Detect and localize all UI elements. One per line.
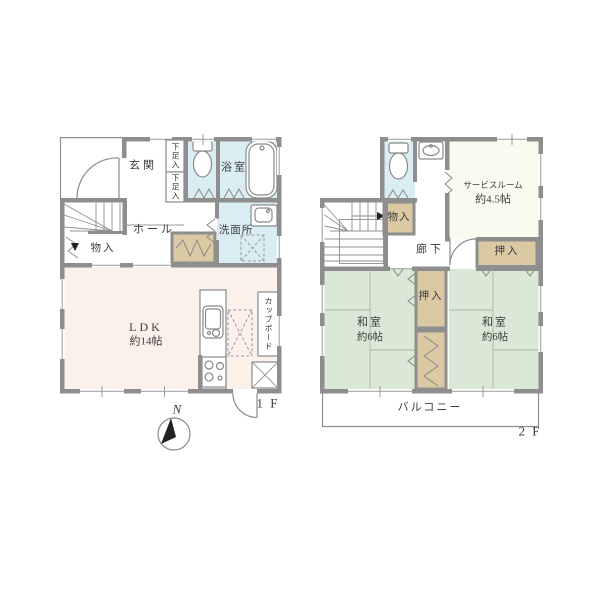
room-label-washitsu-right-size: 約6帖 — [482, 333, 508, 344]
closet-lower-box — [416, 331, 446, 389]
room-label-shoe-box-upper: 下足入 — [171, 143, 179, 170]
room-label-ldk-size: 約14帖 — [130, 337, 163, 348]
room-label-service-size: 約4.5帖 — [475, 195, 511, 206]
toilet-tank-2f — [389, 143, 408, 153]
room-label-storage-1f: 物入 — [91, 244, 116, 255]
stove — [202, 357, 226, 387]
floorplan-canvas: 玄関 下足入 下足入 浴室 洗面所 ホール 物入 LDK 約14帖 カップボード… — [0, 0, 600, 600]
room-label-washitsu-left-name: 和室 — [357, 318, 383, 329]
room-label-genkan: 玄関 — [129, 161, 157, 172]
floor2-plan — [320, 134, 543, 427]
room-label-washitsu-left-size: 約6帖 — [357, 333, 383, 344]
toilet-bowl-1f — [194, 151, 212, 177]
compass-n-label: N — [173, 403, 182, 416]
room-label-hall: ホール — [133, 225, 175, 236]
staircase-2f — [325, 203, 386, 264]
room-label-balcony: バルコニー — [398, 403, 463, 414]
floor1-label: 1 F — [257, 397, 280, 410]
washitsu-right-door-arc — [450, 239, 476, 265]
ldk-fill — [62, 265, 279, 391]
room-label-washroom: 洗面所 — [219, 226, 254, 237]
washitsu-left-fill — [322, 269, 415, 391]
washitsu-right-fill — [449, 269, 540, 391]
room-label-storage-2f: 物入 — [388, 213, 411, 224]
toilet-bowl-2f — [390, 153, 408, 179]
room-label-corridor: 廊下 — [416, 245, 444, 256]
room-label-oshiire-right: 押入 — [495, 247, 520, 258]
entrance-door-arc — [77, 158, 119, 198]
floorplan-drawing — [0, 0, 600, 600]
room-label-cupboard: カップボード — [264, 297, 272, 351]
compass — [158, 418, 190, 450]
room-label-bathroom: 浴室 — [221, 163, 247, 174]
room-label-oshiire-center: 押入 — [419, 292, 444, 303]
room-label-ldk-name: LDK — [129, 321, 163, 333]
ldk-exterior-door-arc — [233, 394, 257, 418]
room-label-service-name: サービスルーム — [463, 181, 522, 190]
ldk-door-gap — [233, 389, 257, 394]
room-label-shoe-box-lower: 下足入 — [171, 174, 179, 201]
room-label-washitsu-right-name: 和室 — [482, 318, 508, 329]
floor2-label: 2 F — [519, 425, 542, 438]
